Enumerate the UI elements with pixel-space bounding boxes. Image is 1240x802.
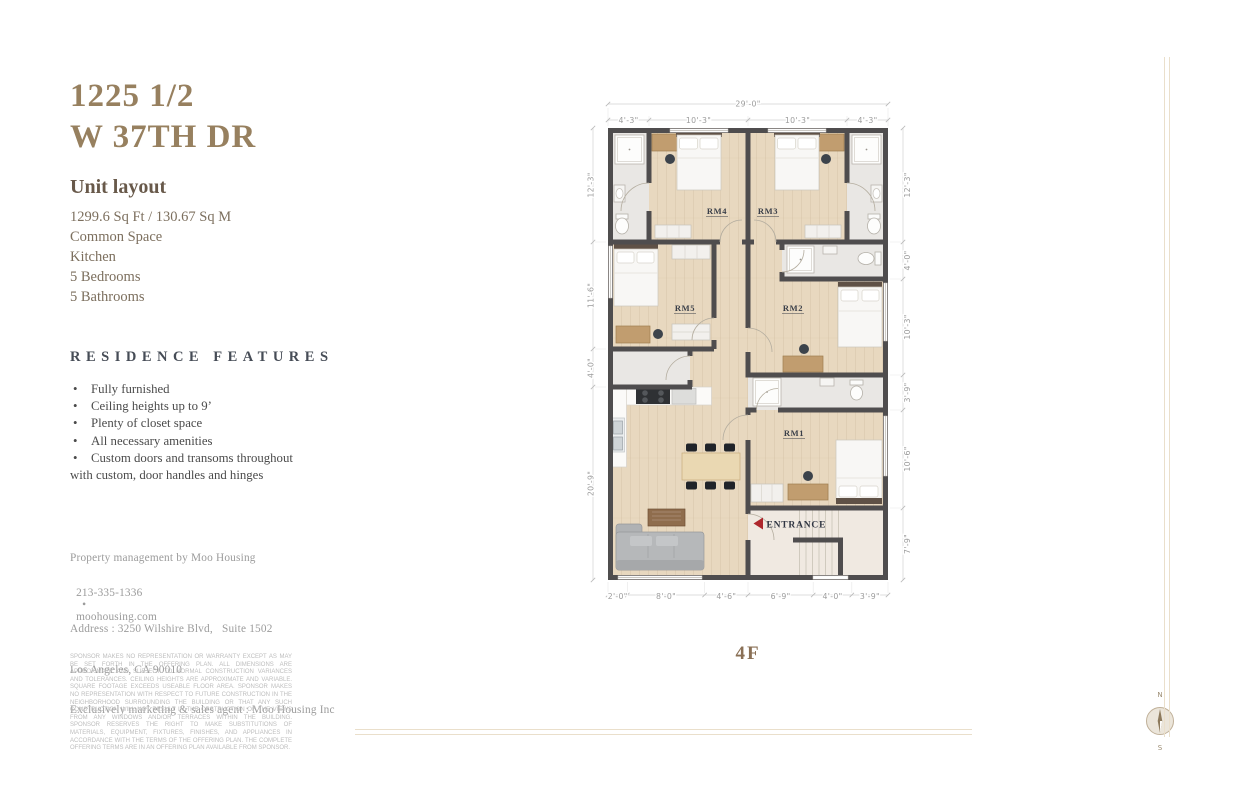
unit-layout-heading: Unit layout xyxy=(70,176,166,199)
coffee-table-icon xyxy=(648,509,685,526)
unit-detail-kitchen: Kitchen xyxy=(70,247,231,267)
unit-detail-bathrooms: 5 Bathrooms xyxy=(70,287,231,307)
dresser-icon xyxy=(805,225,841,238)
dining-chair-icon xyxy=(686,444,697,452)
dim-bottom-2: 8'-0" xyxy=(656,592,676,601)
property-address-title: 1225 1/2 W 37TH DR xyxy=(70,76,256,158)
dim-right-5: 10'-6" xyxy=(903,446,912,471)
dim-bottom-4: 6'-9" xyxy=(771,592,791,601)
management-line: Property management by Moo Housing xyxy=(70,552,256,564)
dim-left-1: 12'-3" xyxy=(587,172,596,197)
chair-icon xyxy=(821,154,831,164)
dim-bottom-3: 4'-6" xyxy=(716,592,736,601)
dining-chair-icon xyxy=(705,482,716,490)
floor-plan-body: RM4 RM3 RM5 RM2 RM1 ENTRANCE xyxy=(608,128,888,580)
dining-chair-icon xyxy=(724,444,735,452)
residence-features-list: Fully furnished Ceiling heights up to 9’… xyxy=(70,381,302,484)
unit-detail-sqft: 1299.6 Sq Ft / 130.67 Sq M xyxy=(70,207,231,227)
feature-item: Fully furnished xyxy=(70,381,302,398)
residence-features-heading: RESIDENCE FEATURES xyxy=(70,349,334,366)
dim-right-4: 3'-9" xyxy=(903,383,912,403)
dim-top-1: 4'-3" xyxy=(619,116,639,125)
sofa-back xyxy=(616,560,704,570)
feature-item: Plenty of closet space xyxy=(70,415,302,432)
dresser-icon xyxy=(672,245,710,259)
decorative-horizontal-rule xyxy=(355,729,972,730)
room-label-rm3: RM3 xyxy=(758,206,778,216)
dining-chair-icon xyxy=(724,482,735,490)
dim-right-6: 7'-9" xyxy=(903,534,912,554)
stair-opening xyxy=(813,576,848,579)
sink-icon xyxy=(823,246,837,254)
room-label-rm2: RM2 xyxy=(783,303,803,313)
unit-details-list: 1299.6 Sq Ft / 130.67 Sq M Common Space … xyxy=(70,207,231,307)
dining-area xyxy=(682,444,740,490)
sink-icon xyxy=(820,378,834,386)
dim-top-4: 4'-3" xyxy=(858,116,878,125)
dresser-icon xyxy=(655,225,691,238)
dim-right-1: 12'-3" xyxy=(903,172,912,197)
dining-chair-icon xyxy=(686,482,697,490)
desk-icon xyxy=(616,326,650,343)
compass: N S xyxy=(1140,688,1180,752)
office-address-line: Address : 3250 Wilshire Blvd, Suite 1502 xyxy=(70,623,335,637)
room-label-rm4: RM4 xyxy=(707,206,727,216)
toilet-icon xyxy=(850,380,863,385)
unit-detail-bedrooms: 5 Bedrooms xyxy=(70,267,231,287)
desk-icon xyxy=(783,356,823,372)
feature-item: All necessary amenities xyxy=(70,433,302,450)
chair-icon xyxy=(799,344,809,354)
dim-left-2: 11'-6" xyxy=(587,283,596,308)
dim-bottom-6: 3'-9" xyxy=(860,592,880,601)
decorative-vertical-rule xyxy=(1169,57,1170,737)
toilet-icon xyxy=(875,252,881,265)
floor-plan-svg: 29'-0" 4'-3" 10'-3" 10'-3" 4'-3" 2'-0" 8… xyxy=(575,90,920,610)
decorative-vertical-rule xyxy=(1164,57,1165,737)
address-line-1: 1225 1/2 xyxy=(70,76,256,117)
address-line-2: W 37TH DR xyxy=(70,117,256,158)
room-label-rm1: RM1 xyxy=(784,428,804,438)
dim-left-4: 20'-9" xyxy=(587,471,596,496)
entrance-floor xyxy=(748,508,888,578)
entrance-label: ENTRANCE xyxy=(767,521,827,531)
desk-icon xyxy=(788,484,828,500)
dresser-icon xyxy=(751,484,783,502)
unit-detail-common: Common Space xyxy=(70,227,231,247)
dim-left-3: 4'-0" xyxy=(587,358,596,378)
counter-appliance xyxy=(672,389,696,405)
chair-icon xyxy=(653,329,663,339)
compass-south-label: S xyxy=(1158,744,1163,752)
chair-icon xyxy=(665,154,675,164)
feature-item: Ceiling heights up to 9’ xyxy=(70,398,302,415)
dim-overall-width: 29'-0" xyxy=(735,100,760,109)
legal-disclaimer: SPONSOR MAKES NO REPRESENTATION OR WARRA… xyxy=(70,654,292,753)
chair-icon xyxy=(803,471,813,481)
dining-table-icon xyxy=(682,453,740,480)
dim-top-2: 10'-3" xyxy=(686,116,711,125)
dim-bottom-5: 4'-0" xyxy=(823,592,843,601)
decorative-horizontal-rule xyxy=(355,734,972,735)
feature-item: Custom doors and transoms throughout wit… xyxy=(70,450,302,484)
dim-top-3: 10'-3" xyxy=(785,116,810,125)
room-label-rm5: RM5 xyxy=(675,303,695,313)
dining-chair-icon xyxy=(705,444,716,452)
compass-north-label: N xyxy=(1157,691,1162,699)
dim-bottom-1: 2'-0" xyxy=(608,592,628,601)
dim-right-3: 10'-3" xyxy=(903,314,912,339)
stove-icon xyxy=(636,389,670,405)
dim-right-2: 4'-0" xyxy=(903,251,912,271)
bed-headboard xyxy=(836,498,882,504)
floor-number-label: 4F xyxy=(648,643,848,665)
